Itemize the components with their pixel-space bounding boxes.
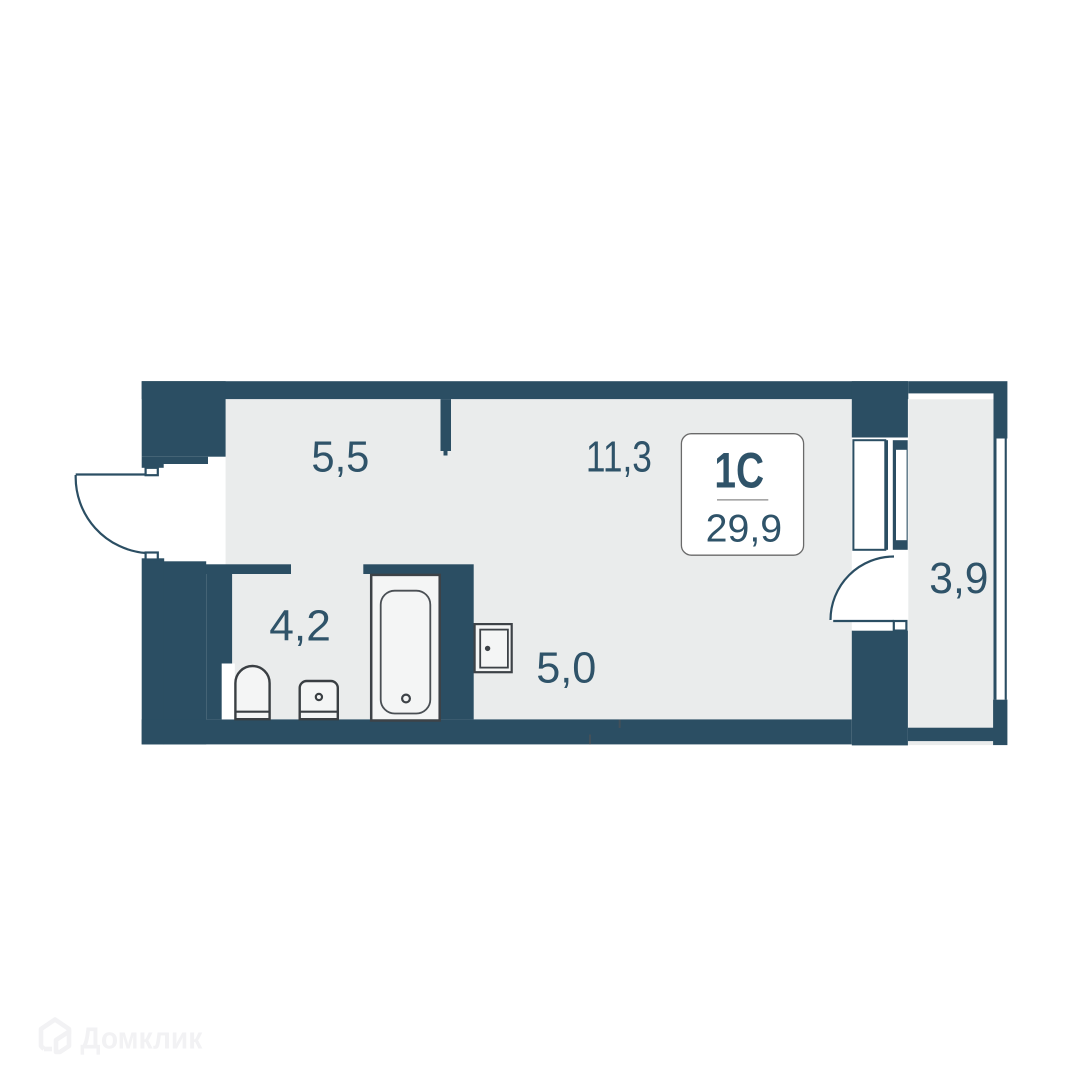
svg-text:29,9: 29,9 [706, 507, 783, 550]
svg-text:4,2: 4,2 [269, 603, 331, 651]
svg-text:5,0: 5,0 [536, 645, 596, 693]
svg-text:Домклик: Домклик [80, 1021, 202, 1056]
svg-text:11,3: 11,3 [586, 434, 652, 482]
svg-text:3,9: 3,9 [929, 555, 988, 603]
svg-text:5,5: 5,5 [311, 434, 369, 482]
svg-text:1С: 1С [714, 442, 764, 498]
